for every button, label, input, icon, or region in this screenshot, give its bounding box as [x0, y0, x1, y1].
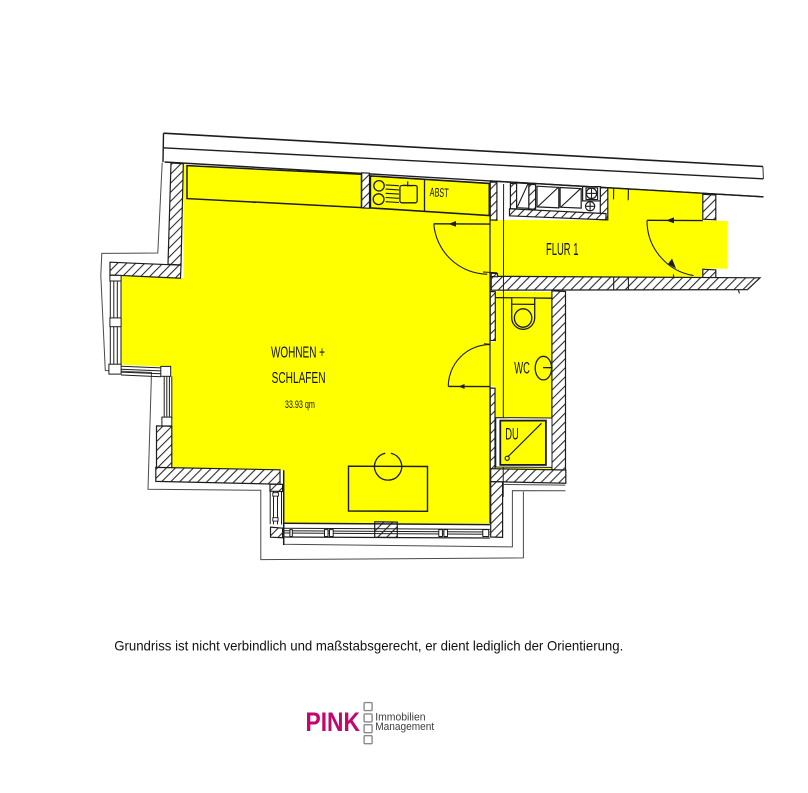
svg-text:WOHNEN +: WOHNEN +: [271, 343, 325, 361]
svg-text:SCHLAFEN: SCHLAFEN: [272, 369, 326, 387]
svg-text:ABST: ABST: [429, 187, 449, 201]
svg-text:FLUR 1: FLUR 1: [546, 239, 579, 259]
svg-text:33.93 qm: 33.93 qm: [285, 397, 315, 410]
svg-text:Grundriss ist nicht verbindlic: Grundriss ist nicht verbindlich und maßs…: [114, 638, 623, 653]
svg-text:DU: DU: [505, 425, 518, 444]
svg-text:WC: WC: [514, 359, 530, 378]
svg-text:PINK: PINK: [306, 708, 361, 737]
svg-text:Management: Management: [375, 721, 434, 734]
